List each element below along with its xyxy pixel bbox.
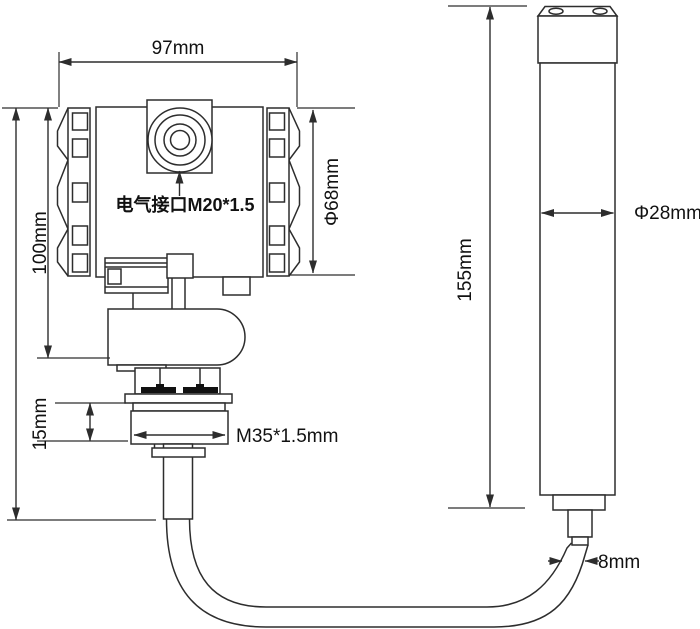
probe-length-label: 155mm xyxy=(455,238,476,301)
dim-overall-width: 97mm xyxy=(59,38,297,107)
dim-cable-diameter: 8mm xyxy=(548,552,640,573)
probe-body xyxy=(540,63,615,495)
thread-height-label: 15mm xyxy=(30,398,51,451)
process-connection xyxy=(117,365,232,519)
coupling-housing xyxy=(108,309,245,365)
left-end-cap xyxy=(58,108,91,276)
body-step xyxy=(223,277,250,295)
transmitter-head xyxy=(58,100,300,519)
cable-ferrule xyxy=(572,537,588,545)
cable-diameter-label: 8mm xyxy=(598,552,640,573)
left-cap-fin-profile xyxy=(58,108,69,276)
dimension-drawing: 97mm 100mm 15mm Φ68mm 电气 xyxy=(0,0,700,629)
lower-flange xyxy=(152,448,205,457)
seal-pin xyxy=(196,384,204,388)
conduit-entry xyxy=(147,100,212,173)
mounting-flange xyxy=(125,394,232,403)
probe-top-face xyxy=(538,7,617,17)
cap-diameter-label: Φ68mm xyxy=(322,158,343,226)
seal-pin xyxy=(156,384,164,388)
dim-body-height: 100mm xyxy=(30,108,51,358)
bracket-terminal-block xyxy=(167,254,193,278)
process-thread-label: M35*1.5mm xyxy=(236,426,338,447)
flange-neck xyxy=(133,403,225,411)
submersible-probe xyxy=(538,7,617,546)
probe-cap xyxy=(538,16,617,63)
overall-width-label: 97mm xyxy=(152,38,205,59)
right-end-cap xyxy=(267,108,300,276)
dim-thread-height: 15mm xyxy=(30,398,128,451)
connection-cable xyxy=(167,519,589,627)
right-cap-strip xyxy=(267,108,289,276)
probe-nose xyxy=(553,495,605,510)
hex-nut xyxy=(131,411,228,444)
right-cap-fin-profile xyxy=(289,108,300,276)
electrical-port-label: 电气接口M20*1.5 xyxy=(115,194,254,215)
probe-diameter-label: Φ28mm xyxy=(634,203,700,224)
body-height-label: 100mm xyxy=(30,211,51,274)
cable-inner-edge xyxy=(190,519,572,607)
conduit-entry-hole xyxy=(171,131,190,150)
cable-outer-edge xyxy=(167,519,589,627)
left-cap-strip xyxy=(68,108,90,276)
dim-probe-length: 155mm xyxy=(448,6,527,508)
cable-gland xyxy=(568,510,592,537)
drawing-canvas: 97mm 100mm 15mm Φ68mm 电气 xyxy=(0,0,700,629)
